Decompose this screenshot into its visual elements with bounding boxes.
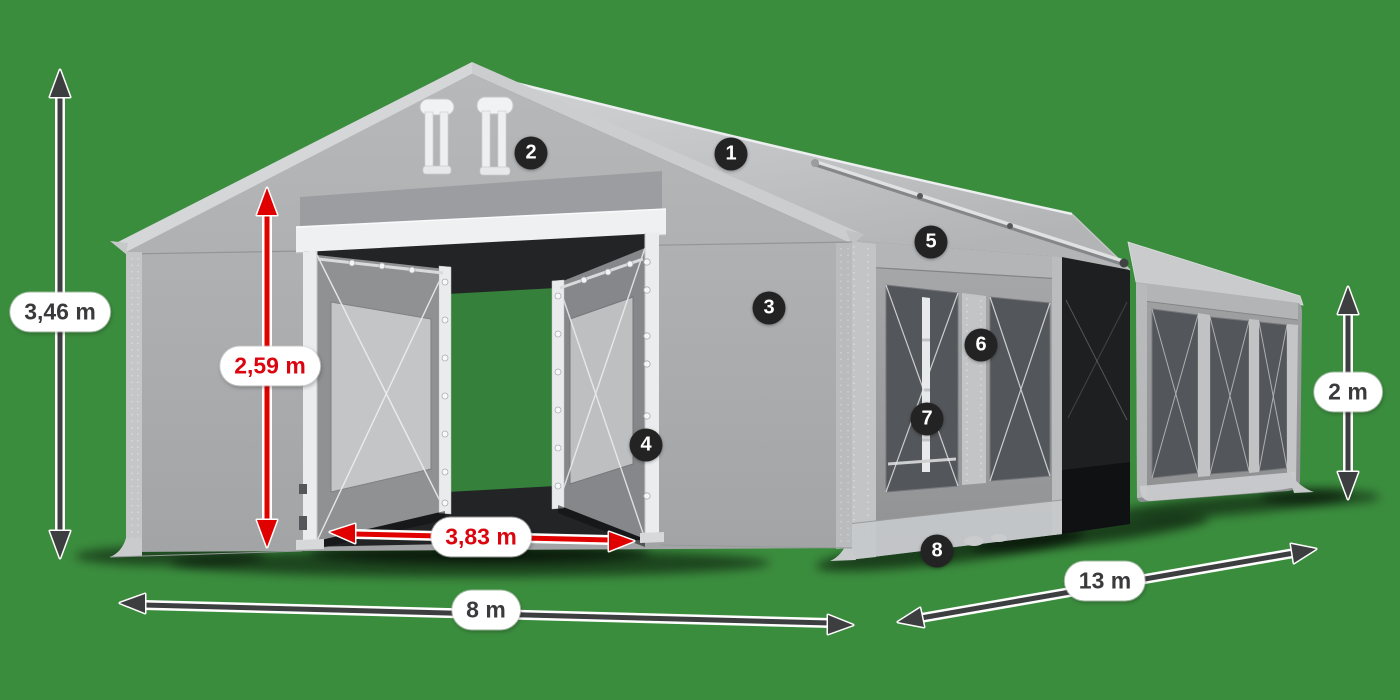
callout-badge-3: 3 bbox=[753, 292, 786, 325]
door-leaf-right bbox=[552, 248, 645, 547]
callout-badge-4: 4 bbox=[630, 429, 663, 462]
tent-dimension-diagram: 3,46 m 2,59 m 3,83 m 8 m 13 m 2 m 1 2 3 … bbox=[0, 0, 1400, 700]
tent-rear-section bbox=[1128, 242, 1314, 502]
dimension-pill-total-height: 3,46 m bbox=[10, 293, 110, 332]
dimension-pill-length: 13 m bbox=[1065, 562, 1145, 601]
tent-illustration bbox=[0, 0, 1400, 700]
dimension-pill-entrance-width: 3,83 m bbox=[431, 518, 531, 557]
dimension-pill-width: 8 m bbox=[452, 591, 520, 630]
dimension-pill-entrance-height: 2,59 m bbox=[220, 347, 320, 386]
tent-front-facade bbox=[110, 62, 864, 557]
callout-badge-5: 5 bbox=[915, 226, 948, 259]
dimension-pill-side-height: 2 m bbox=[1314, 373, 1382, 412]
callout-badge-6: 6 bbox=[965, 329, 998, 362]
tent-side-wall bbox=[830, 240, 1062, 561]
open-side-bay bbox=[1062, 257, 1130, 534]
callout-badge-8: 8 bbox=[921, 535, 954, 568]
callout-badge-1: 1 bbox=[715, 138, 748, 171]
callout-badge-2: 2 bbox=[515, 137, 548, 170]
door-leaf-left bbox=[317, 255, 451, 549]
callout-badge-7: 7 bbox=[911, 403, 944, 436]
